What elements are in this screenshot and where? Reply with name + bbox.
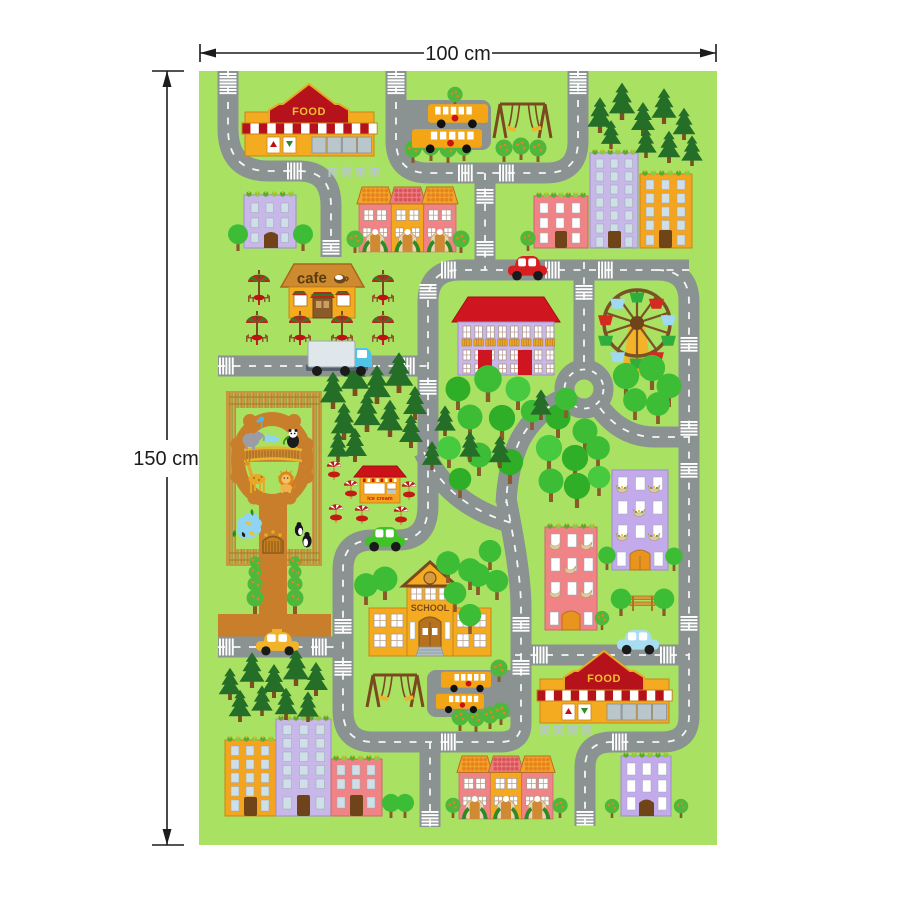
svg-text:FOOD: FOOD (587, 673, 621, 685)
svg-text:ice cream: ice cream (367, 496, 392, 502)
svg-text:150 cm: 150 cm (133, 448, 199, 470)
svg-text:SCHOOL: SCHOOL (411, 603, 450, 613)
svg-text:FOOD: FOOD (292, 106, 326, 118)
svg-text:cafe: cafe (297, 269, 328, 287)
svg-text:100 cm: 100 cm (425, 43, 491, 65)
